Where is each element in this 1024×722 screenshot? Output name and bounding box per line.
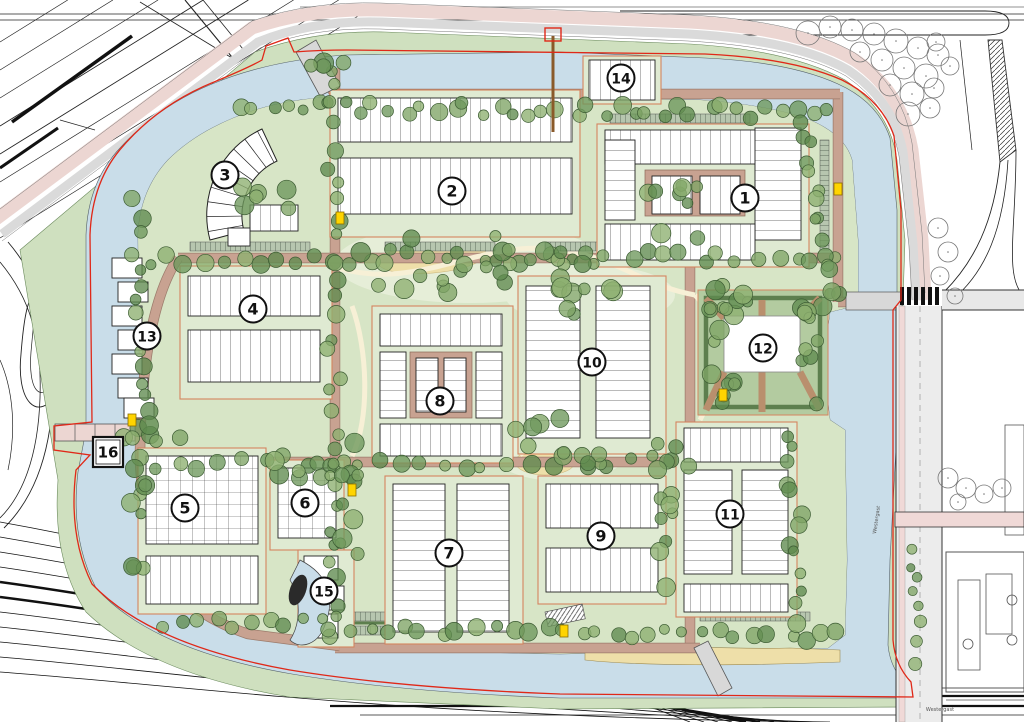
block-marker-label: 4 bbox=[247, 300, 258, 319]
block-marker-label: 10 bbox=[582, 356, 602, 372]
block-marker-label: 8 bbox=[434, 392, 445, 411]
block-marker-2: 2 bbox=[439, 178, 466, 205]
block-marker-10: 10 bbox=[579, 349, 606, 376]
block-marker-4: 4 bbox=[240, 296, 267, 323]
block-marker-7: 7 bbox=[436, 540, 463, 567]
block-marker-label: 9 bbox=[595, 527, 606, 546]
utility-marker bbox=[336, 212, 344, 224]
block-marker-16: 16 bbox=[93, 437, 123, 467]
block-marker-9: 9 bbox=[588, 523, 615, 550]
block-marker-3: 3 bbox=[212, 162, 239, 189]
utility-marker bbox=[560, 625, 568, 637]
street-label: Westergast bbox=[926, 707, 954, 713]
block-marker-label: 15 bbox=[314, 585, 333, 601]
block-marker-1: 1 bbox=[732, 185, 759, 212]
block-marker-label: 12 bbox=[753, 342, 772, 358]
block-marker-15: 15 bbox=[311, 578, 338, 605]
utility-marker bbox=[719, 389, 727, 401]
block-marker-label: 7 bbox=[443, 544, 454, 563]
site-plan-page: 1 2 3 4 5 6 7 8 9 10 11 12 13 bbox=[0, 0, 1024, 722]
block-marker-label: 16 bbox=[98, 444, 119, 462]
block-marker-label: 3 bbox=[219, 166, 230, 185]
block-marker-13: 13 bbox=[134, 323, 161, 350]
block-marker-label: 2 bbox=[446, 182, 457, 201]
block-marker-label: 6 bbox=[299, 494, 310, 513]
block-marker-label: 5 bbox=[179, 499, 190, 518]
block-marker-11: 11 bbox=[717, 501, 744, 528]
utility-marker bbox=[348, 484, 356, 496]
block-marker-5: 5 bbox=[172, 495, 199, 522]
block-marker-12: 12 bbox=[750, 335, 777, 362]
block-marker-label: 14 bbox=[611, 72, 631, 88]
block-marker-6: 6 bbox=[292, 490, 319, 517]
utility-marker bbox=[128, 414, 136, 426]
block-marker-label: 11 bbox=[720, 508, 739, 524]
block-marker-14: 14 bbox=[608, 65, 635, 92]
utility-marker bbox=[834, 183, 842, 195]
block-marker-8: 8 bbox=[427, 388, 454, 415]
block-marker-label: 13 bbox=[137, 330, 156, 346]
block-marker-label: 1 bbox=[739, 189, 750, 208]
masterplan-svg: 1 2 3 4 5 6 7 8 9 10 11 12 13 bbox=[0, 0, 1024, 722]
